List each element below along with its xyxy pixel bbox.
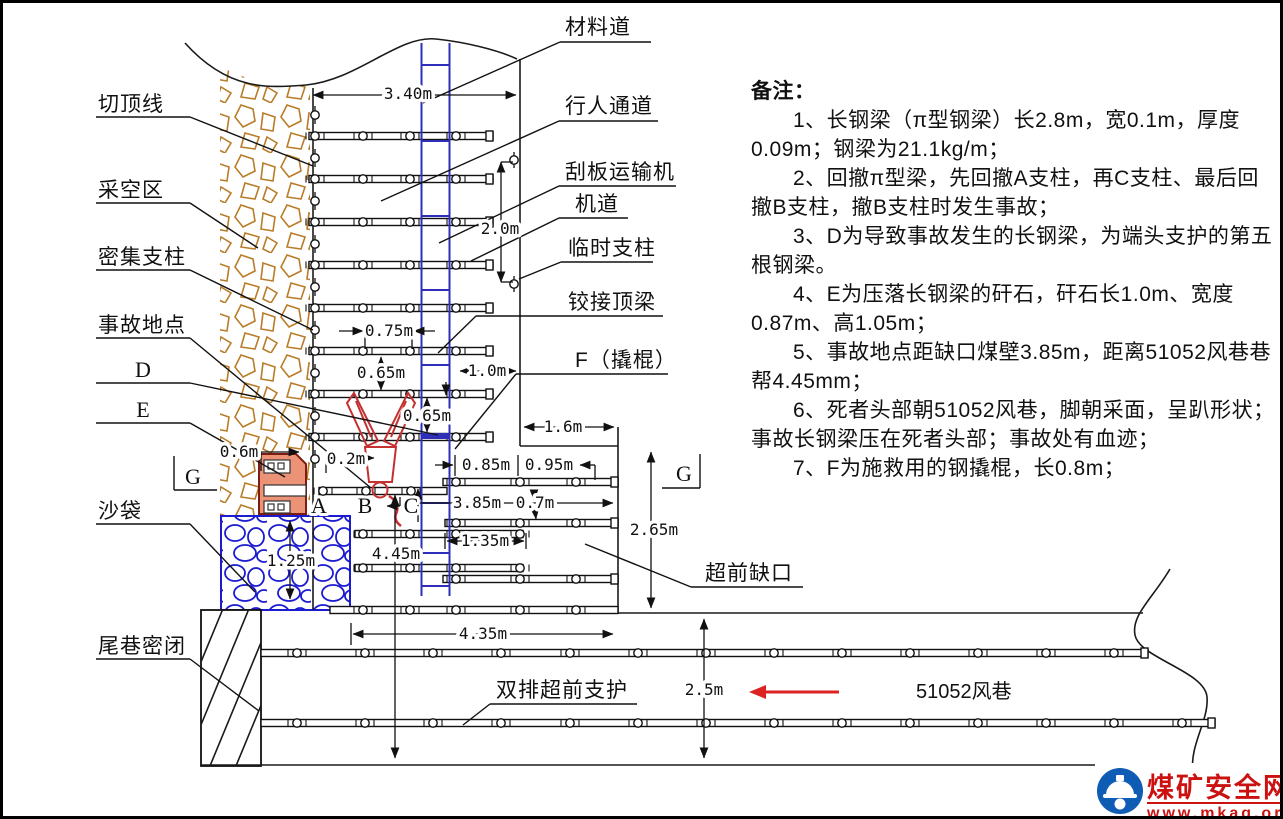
watermark-site-url: www.mkaq.org bbox=[1146, 805, 1283, 819]
notes-block: 备注： 1、长钢梁（π型钢梁）长2.8m，宽0.1m，厚度0.09m；钢梁为21… bbox=[751, 77, 1279, 483]
steel-beam-row bbox=[306, 260, 493, 270]
note-item-3: 3、D为导致事故发生的长钢梁，为端头支护的第五根钢梁。 bbox=[751, 222, 1279, 280]
right-break-line bbox=[1135, 569, 1208, 773]
label-accident-spot: 事故地点 bbox=[98, 314, 186, 337]
steel-beam-row bbox=[306, 174, 493, 184]
steel-beam-row bbox=[354, 564, 529, 572]
scraper-conveyor-ladder bbox=[422, 43, 450, 596]
label-airway-51052: 51052风巷 bbox=[916, 680, 1012, 703]
label-letter-G-right: G bbox=[676, 461, 692, 486]
label-material-road: 材料道 bbox=[565, 16, 631, 39]
watermark-logo: 煤矿安全网 www.mkaq.org bbox=[1095, 763, 1283, 819]
label-prop-A: A bbox=[311, 493, 327, 518]
watermark-site-name: 煤矿安全网 bbox=[1147, 772, 1283, 803]
label-crowbar-F: F（撬棍） bbox=[575, 349, 677, 372]
label-letter-D: D bbox=[135, 357, 151, 382]
dense-prop-column bbox=[311, 106, 319, 468]
dim-to-roadway: 4.45m bbox=[372, 544, 420, 563]
mine-accident-diagram: 切顶线 采空区 密集支柱 事故地点 D E G 沙袋 尾巷密闭 材料道 行人通道… bbox=[0, 0, 1283, 819]
label-sandbag: 沙袋 bbox=[98, 500, 142, 523]
dim-beam-overlap: 1.35m bbox=[461, 531, 509, 550]
face-beams bbox=[306, 131, 493, 442]
note-item-7: 7、F为施救用的钢撬棍，长0.8m； bbox=[751, 454, 1279, 483]
steel-beam-row bbox=[306, 131, 493, 141]
label-advance-notch: 超前缺口 bbox=[705, 562, 793, 585]
dim-body-offset: 0.2m bbox=[327, 449, 366, 468]
dim-rock-offset: 0.6m bbox=[220, 442, 259, 461]
dim-top-width: 3.40m bbox=[384, 84, 432, 103]
dim-prop-gap: 0.75m bbox=[365, 321, 413, 340]
dim-notch-step: 1.6m bbox=[544, 417, 583, 436]
label-prop-C: C bbox=[404, 493, 419, 518]
label-prop-B: B bbox=[358, 493, 373, 518]
label-scraper-conveyor: 刮板运输机 bbox=[565, 161, 675, 184]
dimension-lines bbox=[261, 95, 704, 758]
dim-row-gap-b: 0.65m bbox=[403, 406, 451, 425]
steel-beam-row bbox=[443, 574, 618, 584]
dim-notch-height: 2.65m bbox=[630, 520, 678, 539]
label-cut-top-line: 切顶线 bbox=[98, 93, 164, 116]
label-dense-props: 密集支柱 bbox=[98, 246, 186, 269]
rock-E bbox=[259, 454, 306, 514]
label-tail-seal: 尾巷密闭 bbox=[98, 635, 186, 658]
dim-notch-width: 4.35m bbox=[459, 624, 507, 643]
dim-sandbag-height: 1.25m bbox=[267, 551, 315, 570]
dim-last-prop-to-wall: 1.0m bbox=[468, 361, 507, 380]
steel-beam-row bbox=[306, 303, 493, 313]
note-item-2: 2、回撤π型梁，先回撤A支柱，再C支柱、最后回撤B支柱，撤B支柱时发生事故； bbox=[751, 164, 1279, 222]
label-pedestrian-way: 行人通道 bbox=[565, 95, 653, 118]
top-break-line bbox=[185, 39, 517, 87]
note-item-4: 4、E为压落长钢梁的矸石，矸石长1.0m、宽度0.87m、高1.05m； bbox=[751, 280, 1279, 338]
notes-heading: 备注： bbox=[751, 77, 1279, 106]
steel-beam-row bbox=[306, 346, 493, 356]
note-item-6: 6、死者头部朝51052风巷，脚朝采面，呈趴形状；事故长钢梁压在死者头部；事故处… bbox=[751, 396, 1279, 454]
dim-row-pair-gap: 0.7m bbox=[516, 493, 555, 512]
dim-face-height: 2.0m bbox=[481, 219, 520, 238]
roadway-beams bbox=[261, 648, 1215, 728]
note-item-1: 1、长钢梁（π型钢梁）长2.8m，宽0.1m，厚度0.09m；钢梁为21.1kg… bbox=[751, 106, 1279, 164]
dim-to-coal-wall: 3.85m bbox=[453, 493, 501, 512]
steel-beam-row bbox=[306, 389, 493, 399]
steel-beam-row bbox=[443, 477, 618, 487]
label-double-row-support: 双排超前支护 bbox=[496, 679, 628, 702]
advance-support-beam-lower bbox=[261, 718, 1215, 728]
label-letter-E: E bbox=[136, 397, 149, 422]
label-hinged-beam: 铰接顶梁 bbox=[568, 291, 656, 314]
note-item-5: 5、事故地点距缺口煤壁3.85m，距离51052风巷巷帮4.45mm； bbox=[751, 338, 1279, 396]
steel-beam-row-abc bbox=[314, 487, 447, 495]
label-machine-road: 机道 bbox=[575, 193, 619, 216]
dim-notch-prop-a: 0.85m bbox=[462, 455, 510, 474]
label-letter-G-left: G bbox=[185, 464, 201, 489]
steel-beam-row bbox=[330, 606, 618, 614]
steel-beam-row bbox=[306, 217, 493, 227]
label-goaf: 采空区 bbox=[98, 179, 164, 202]
steel-beam-row bbox=[445, 518, 618, 528]
dim-notch-prop-b: 0.95m bbox=[525, 455, 573, 474]
label-temp-prop: 临时支柱 bbox=[568, 237, 656, 260]
dim-roadway-width: 2.5m bbox=[685, 680, 724, 699]
airflow-arrow bbox=[749, 685, 839, 699]
dim-row-gap-a: 0.65m bbox=[357, 363, 405, 382]
